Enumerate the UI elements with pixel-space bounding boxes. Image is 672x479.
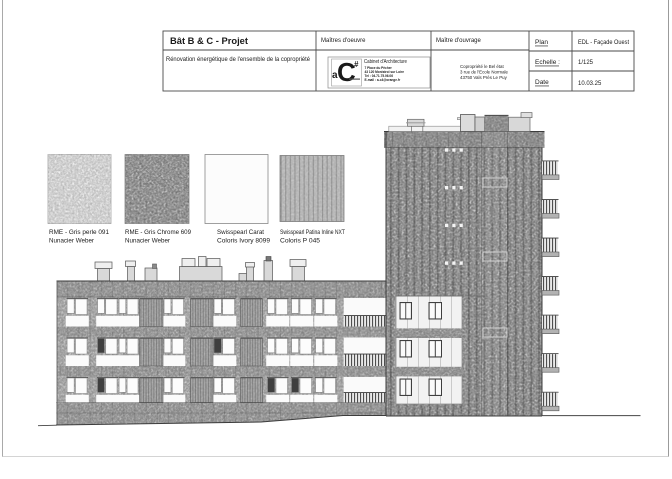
svg-text:Copropriété le Bel état: Copropriété le Bel état <box>460 64 504 69</box>
svg-text:Coloris Ivory 8099: Coloris Ivory 8099 <box>217 237 271 244</box>
svg-text:Maîtres d'oeuvre: Maîtres d'oeuvre <box>321 38 366 44</box>
svg-text:Swisspearl Patina Inline NXT: Swisspearl Patina Inline NXT <box>280 229 345 236</box>
svg-text:Echelle :: Echelle : <box>535 59 560 66</box>
svg-text:RME - Gris perle 091: RME - Gris perle 091 <box>49 229 110 236</box>
svg-text:Date: Date <box>535 79 549 86</box>
svg-text:Coloris P 045: Coloris P 045 <box>280 237 321 244</box>
svg-text:Rénovation énergétique de l'en: Rénovation énergétique de l'ensemble de … <box>166 56 310 63</box>
svg-text:Nunacier Weber: Nunacier Weber <box>49 237 94 244</box>
svg-text:10.03.25: 10.03.25 <box>578 81 602 87</box>
svg-text:Bât B & C - Projet: Bât B & C - Projet <box>170 36 248 46</box>
svg-text:RME - Gris Chrome 609: RME - Gris Chrome 609 <box>125 229 191 236</box>
svg-text:E-mail : a-c4@orange.fr: E-mail : a-c4@orange.fr <box>365 78 401 82</box>
svg-text:Swisspearl Carat: Swisspearl Carat <box>217 229 264 236</box>
svg-text:3 rue de l'Ecole Normale: 3 rue de l'Ecole Normale <box>460 70 508 75</box>
svg-text:1/125: 1/125 <box>578 60 594 66</box>
svg-text:Plan: Plan <box>535 39 548 46</box>
svg-text:Cabinet d'Architecture: Cabinet d'Architecture <box>364 59 407 65</box>
svg-text:43750 Vals Près Le Puy: 43750 Vals Près Le Puy <box>460 75 508 80</box>
svg-text:Nunacier Weber: Nunacier Weber <box>125 237 170 244</box>
svg-text:#: # <box>354 60 359 69</box>
svg-text:Maître d'ouvrage: Maître d'ouvrage <box>436 38 481 44</box>
svg-text:EDL - Façade Ouest: EDL - Façade Ouest <box>578 40 629 46</box>
